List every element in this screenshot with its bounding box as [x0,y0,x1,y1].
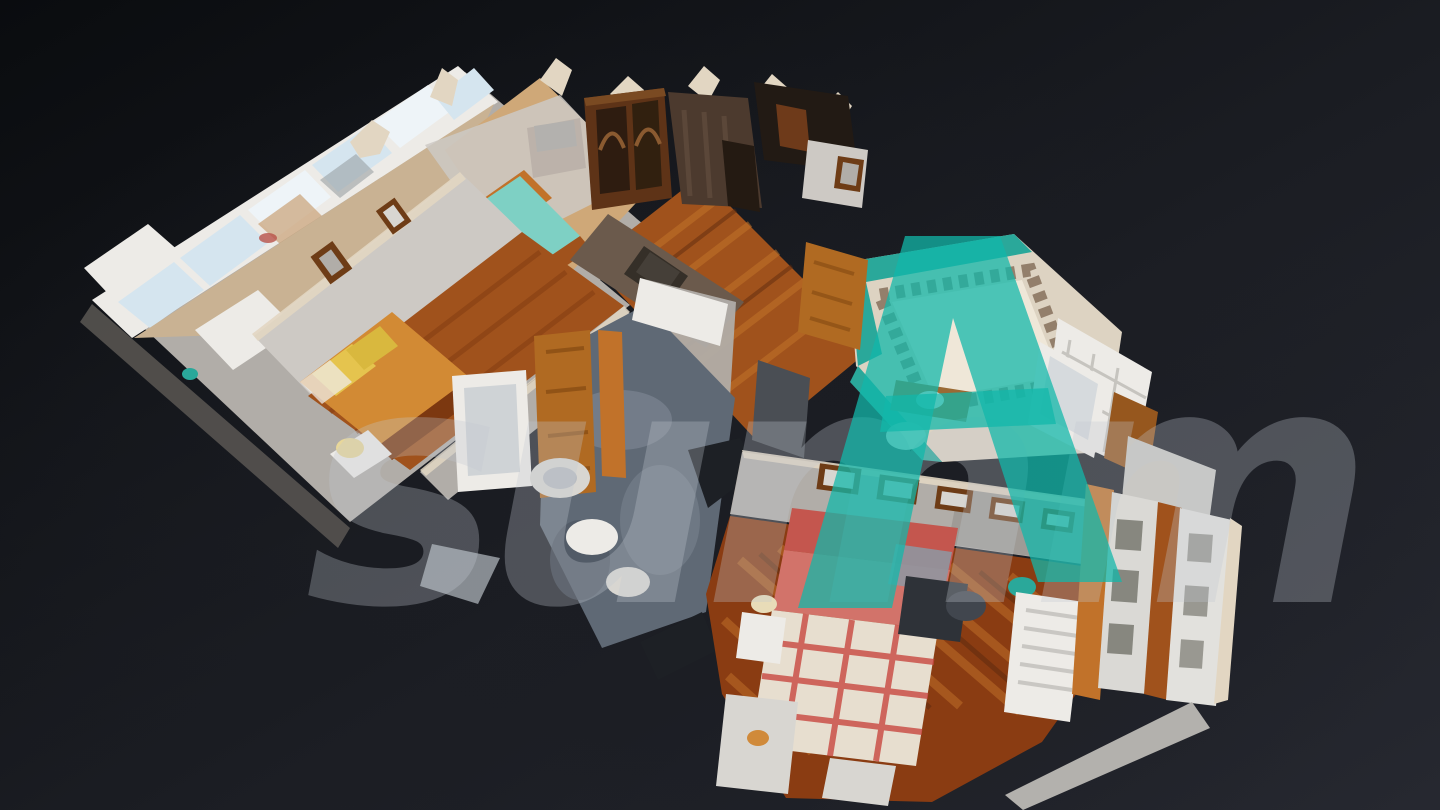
plant [182,368,198,380]
watermark: summ [305,236,1358,680]
bench [822,758,896,806]
door [776,104,810,152]
china-cabinet [584,88,672,210]
doorway [722,140,760,212]
watermark-script-text: summ [305,296,1358,680]
desk-lamp [747,730,769,746]
dollhouse-3d-viewport[interactable]: summ [0,0,1440,810]
viewer-stage: summ [0,0,1440,810]
city-sign [259,233,277,243]
